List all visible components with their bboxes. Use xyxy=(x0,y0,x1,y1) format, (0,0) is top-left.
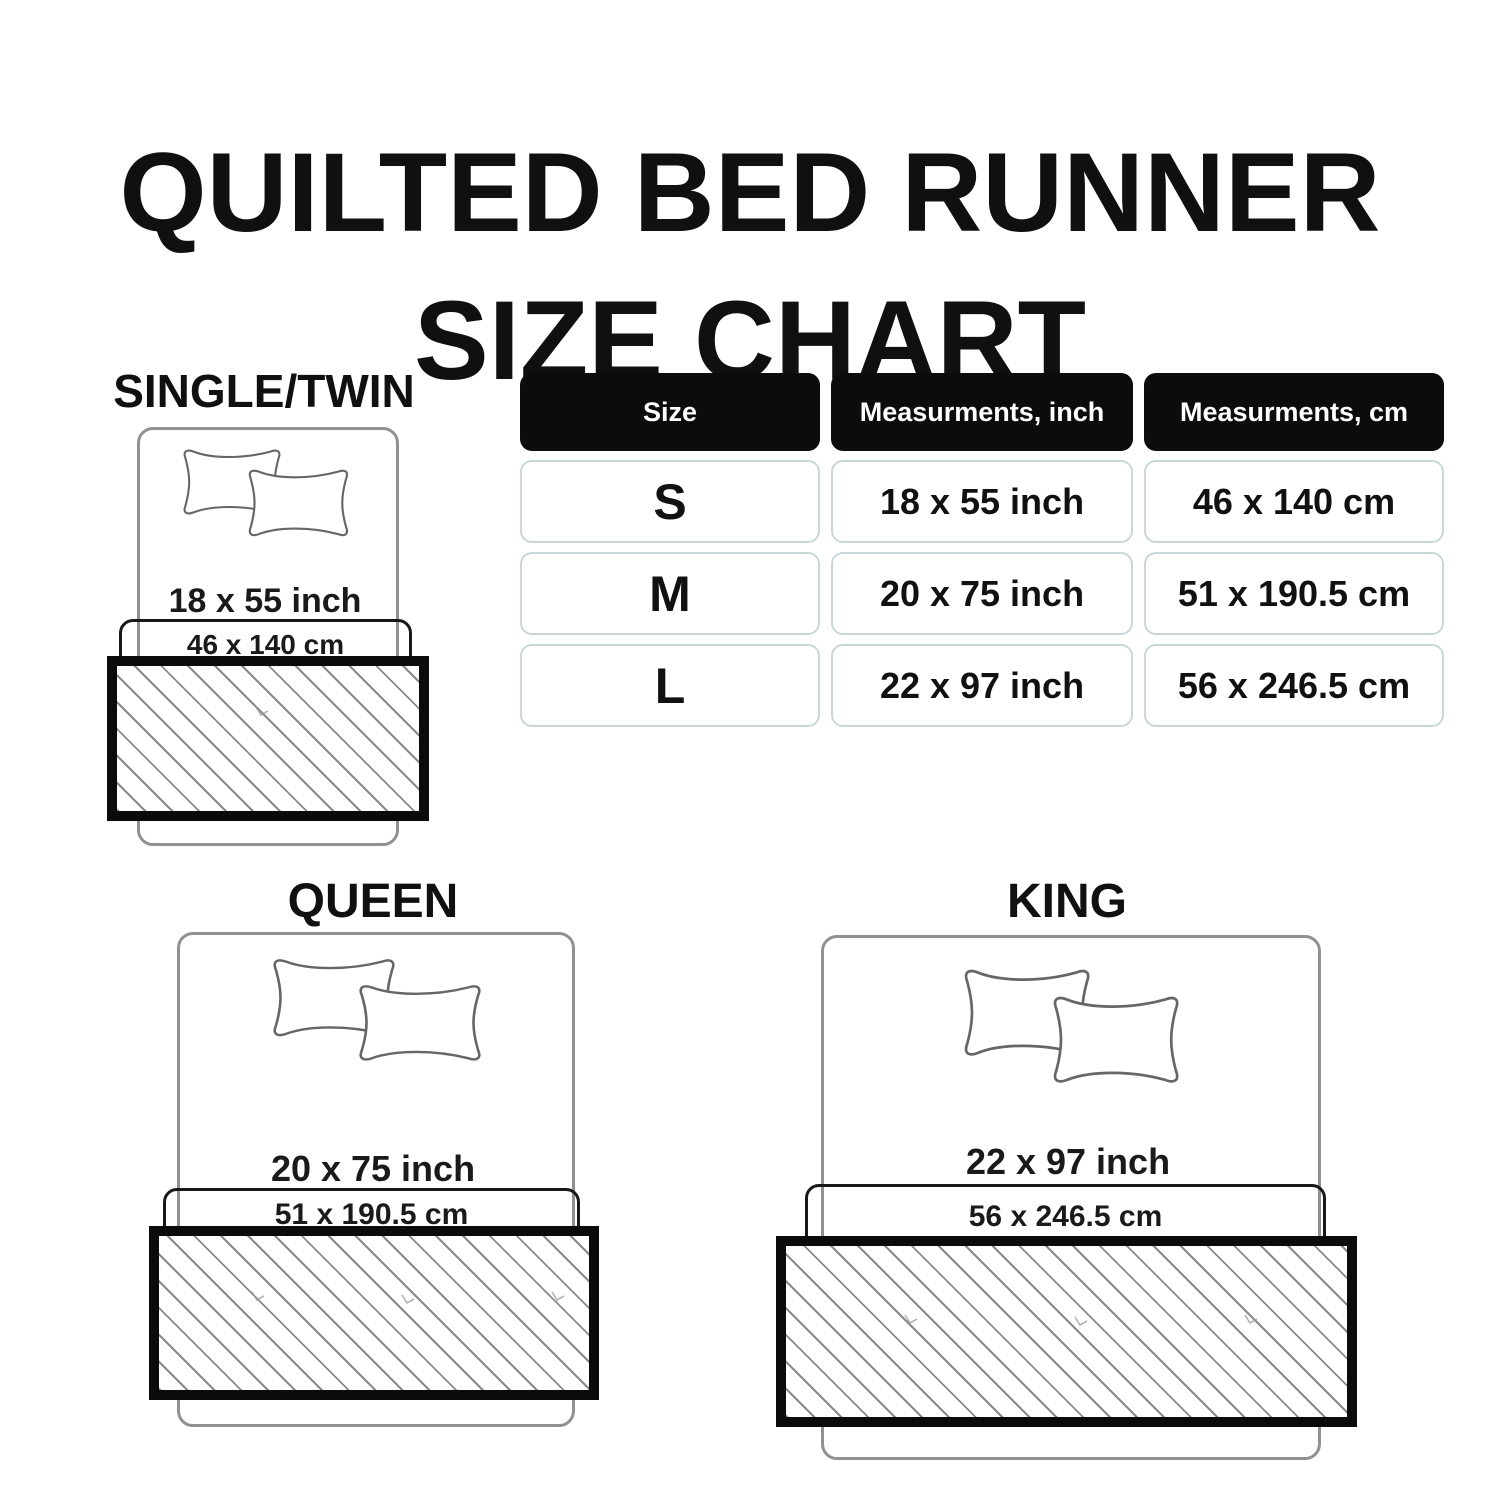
pillows-icon xyxy=(172,442,356,552)
stitch-mark-icon xyxy=(904,1314,918,1324)
diagram-label-single-twin: SINGLE/TWIN xyxy=(104,364,424,418)
size-table: Size Measurments, inch Measurments, cm S… xyxy=(520,373,1444,727)
table-cell-size-s: S xyxy=(520,460,820,543)
diagram-label-queen: QUEEN xyxy=(223,874,523,929)
table-header-inch: Measurments, inch xyxy=(831,373,1133,451)
bed-runner-single-twin xyxy=(107,656,429,821)
stitch-mark-icon xyxy=(551,1291,565,1301)
stitch-mark-icon xyxy=(1244,1314,1258,1324)
bed-runner-queen xyxy=(149,1226,599,1400)
page-title-line1: QUILTED BED RUNNER xyxy=(119,130,1380,255)
diagram-label-king: KING xyxy=(917,874,1217,929)
inch-measurement-single-twin: 18 x 55 inch xyxy=(137,582,393,621)
table-cell-cm-m: 51 x 190.5 cm xyxy=(1144,552,1444,635)
table-cell-size-l: L xyxy=(520,644,820,727)
cm-measurement-king: 56 x 246.5 cm xyxy=(969,1200,1163,1233)
table-cell-inch-m: 20 x 75 inch xyxy=(831,552,1133,635)
table-header-cm: Measurments, cm xyxy=(1144,373,1444,451)
stitch-mark-icon xyxy=(251,1291,265,1301)
stitch-mark-icon xyxy=(1074,1316,1088,1326)
table-cell-cm-s: 46 x 140 cm xyxy=(1144,460,1444,543)
inch-measurement-queen: 20 x 75 inch xyxy=(177,1148,569,1190)
pillows-icon xyxy=(951,961,1191,1095)
stitch-mark-icon xyxy=(401,1294,415,1304)
table-cell-cm-l: 56 x 246.5 cm xyxy=(1144,644,1444,727)
table-cell-size-m: M xyxy=(520,552,820,635)
table-cell-inch-s: 18 x 55 inch xyxy=(831,460,1133,543)
table-header-size: Size xyxy=(520,373,820,451)
size-chart-canvas: QUILTED BED RUNNERSIZE CHART SINGLE/TWIN… xyxy=(0,0,1500,1500)
pillows-icon xyxy=(260,951,496,1071)
bed-runner-king xyxy=(776,1236,1357,1427)
table-cell-inch-l: 22 x 97 inch xyxy=(831,644,1133,727)
inch-measurement-king: 22 x 97 inch xyxy=(821,1141,1315,1183)
stitch-mark-icon xyxy=(255,706,269,716)
